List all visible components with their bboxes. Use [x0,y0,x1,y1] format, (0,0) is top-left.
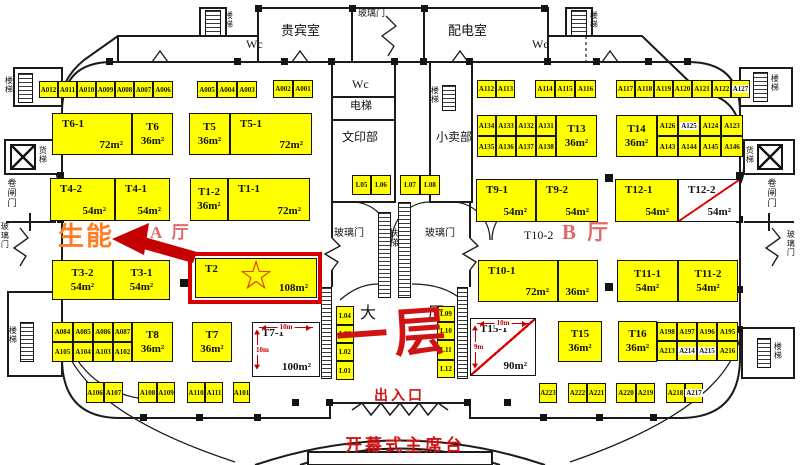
room-label: 楼梯 [770,74,778,92]
t10-2-label: T10-2 [524,229,553,241]
room-label: 卷闸门 [6,178,15,208]
exhibition-floor-plan: T6-172m²T636m²T536m²T5-172m²T4-254m²T4-1… [0,0,800,465]
room-label: 楼梯 [430,86,438,104]
hall-a-label: A 厅 [150,224,192,241]
room-label: 扶梯 [388,228,397,248]
room-label: 玻璃门 [358,9,385,18]
room-label: 玻璃门 [786,230,794,257]
room-label: 楼梯 [773,342,781,360]
hall-b-label: B 厅 [562,222,611,243]
room-label: 配电室 [448,24,487,38]
floor-one-annotation: 一层 [334,306,453,366]
room-label: 楼梯 [224,11,232,29]
room-label: 玻璃门 [0,222,8,249]
room-label: 玻璃门 [334,229,364,240]
room-label: 货梯 [38,146,46,164]
room-label: 楼梯 [589,11,597,29]
room-label: 卷闸门 [766,178,775,208]
room-label: Wc [352,78,369,91]
room-label: 楼梯 [4,76,12,94]
room-label: 货梯 [745,146,753,164]
entrance-exit-label: 出入口 [374,390,425,404]
room-label: 楼梯 [8,326,16,344]
room-label: 玻璃门 [425,229,455,240]
room-label: Wc [246,38,263,51]
rostrum-label: 开幕式主席台 [345,437,465,454]
room-label: Wc [532,38,549,51]
room-label: 电梯 [350,101,372,113]
labels-layer: 贵宾室配电室玻璃门WcWcWc电梯文印部小卖部扶梯玻璃门玻璃门大厅楼梯楼梯楼梯楼… [0,0,800,465]
room-label: 贵宾室 [281,24,320,38]
room-label: 小卖部 [436,131,472,144]
room-label: 文印部 [342,131,378,144]
company-highlight-text: 生能 [58,224,114,250]
